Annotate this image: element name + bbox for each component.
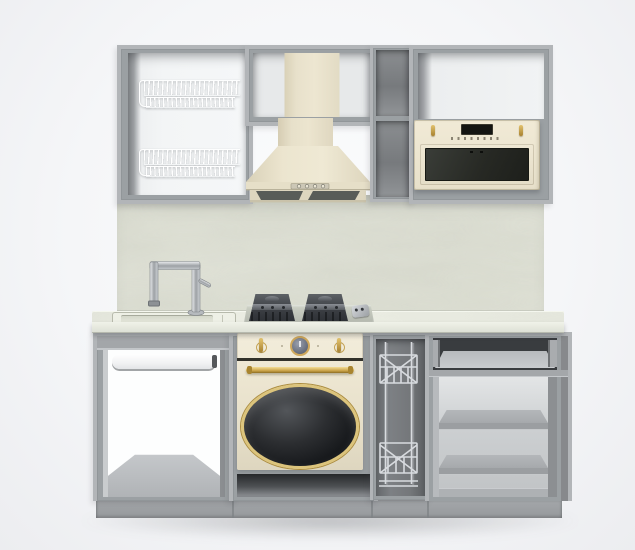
dish-rack-lower	[144, 149, 240, 176]
cabinet-floor	[439, 488, 548, 497]
microwave-buttons	[451, 137, 503, 140]
microwave-knob-right	[519, 125, 523, 136]
hood-chimney-upper	[284, 53, 339, 117]
kitchen-render	[0, 0, 635, 550]
oven-clock	[290, 336, 310, 356]
faucet	[142, 252, 214, 316]
wire-cargo-basket	[375, 339, 422, 495]
open-drawer	[433, 338, 557, 370]
hood-filter-left	[256, 191, 303, 200]
under-oven-gap	[237, 474, 370, 497]
oven-knob-left	[255, 338, 267, 354]
microwave-knob-left	[431, 125, 435, 136]
hood-filter-right	[308, 191, 360, 200]
towel-rail	[112, 354, 216, 369]
gas-burner-right	[302, 294, 348, 321]
oven	[237, 333, 363, 470]
countertop-front-edge	[92, 322, 564, 333]
oven-door	[237, 361, 363, 470]
sink-base-cabinet	[93, 332, 237, 501]
cabinet-interior	[418, 53, 544, 119]
gas-burner-left	[249, 294, 295, 321]
shelf-upper	[439, 410, 548, 429]
cabinet-interior	[128, 53, 246, 195]
dish-rack-upper	[144, 80, 240, 107]
cargo-base-cabinet	[370, 332, 431, 500]
shelf-compartment-top	[376, 50, 409, 116]
shelf-lower	[439, 455, 548, 474]
oven-handle	[246, 367, 354, 373]
cabinet-interior	[433, 377, 557, 497]
shelf-base-cabinet	[425, 332, 572, 501]
hob-control-knob	[351, 304, 369, 318]
cabinet-floor	[108, 449, 220, 497]
microwave-glass	[425, 148, 529, 181]
drawer-slide-right	[548, 340, 557, 367]
shelf-compartment-bottom	[376, 121, 409, 197]
drawer-slide-left	[433, 340, 440, 367]
cabinet-interior	[253, 53, 370, 117]
hood-chimney	[278, 118, 333, 148]
cooker-hood	[246, 146, 370, 204]
microwave-display	[461, 124, 493, 135]
hood-cabinet	[245, 45, 378, 126]
cabinet-interior	[103, 350, 225, 497]
microwave-door	[420, 144, 534, 185]
upper-left-cabinet	[117, 45, 253, 204]
oven-window	[241, 384, 359, 469]
oven-knob-right	[333, 338, 345, 354]
microwave-oven	[414, 120, 540, 190]
